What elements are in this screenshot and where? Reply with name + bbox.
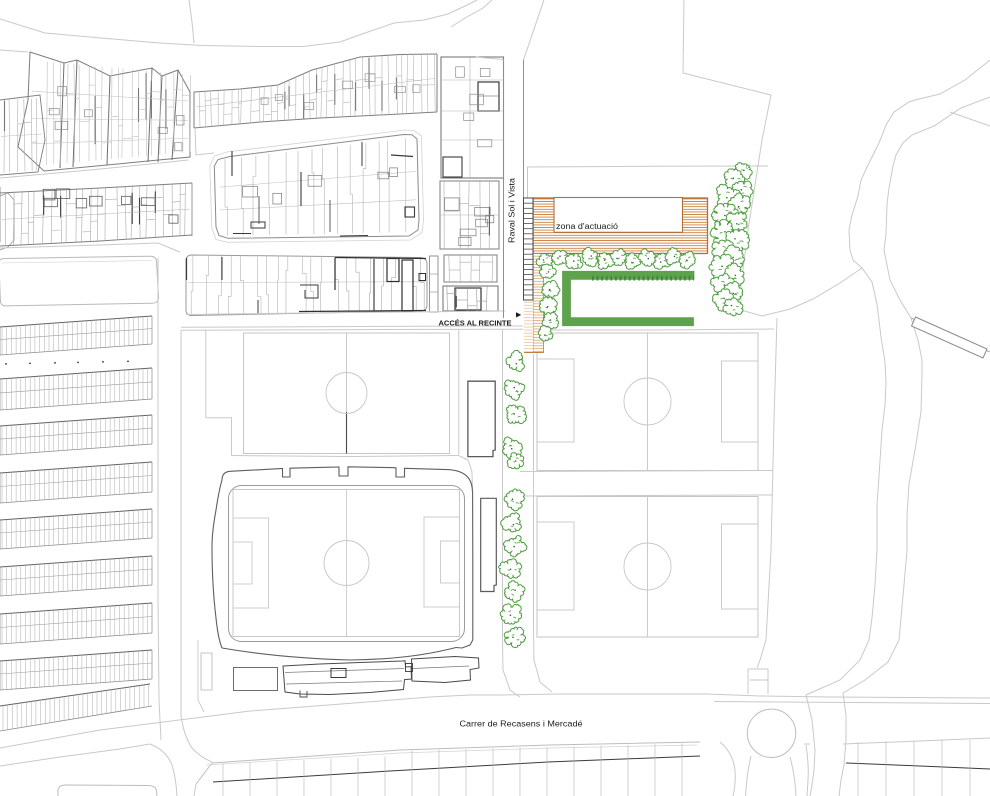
svg-text:Raval Sol i Vista: Raval Sol i Vista [508, 178, 517, 243]
svg-text:zona d'actuació: zona d'actuació [556, 222, 619, 231]
svg-text:ACCÉS AL RECINTE: ACCÉS AL RECINTE [439, 318, 512, 327]
svg-text:Carrer de Recasens i Mercadé: Carrer de Recasens i Mercadé [460, 719, 583, 729]
